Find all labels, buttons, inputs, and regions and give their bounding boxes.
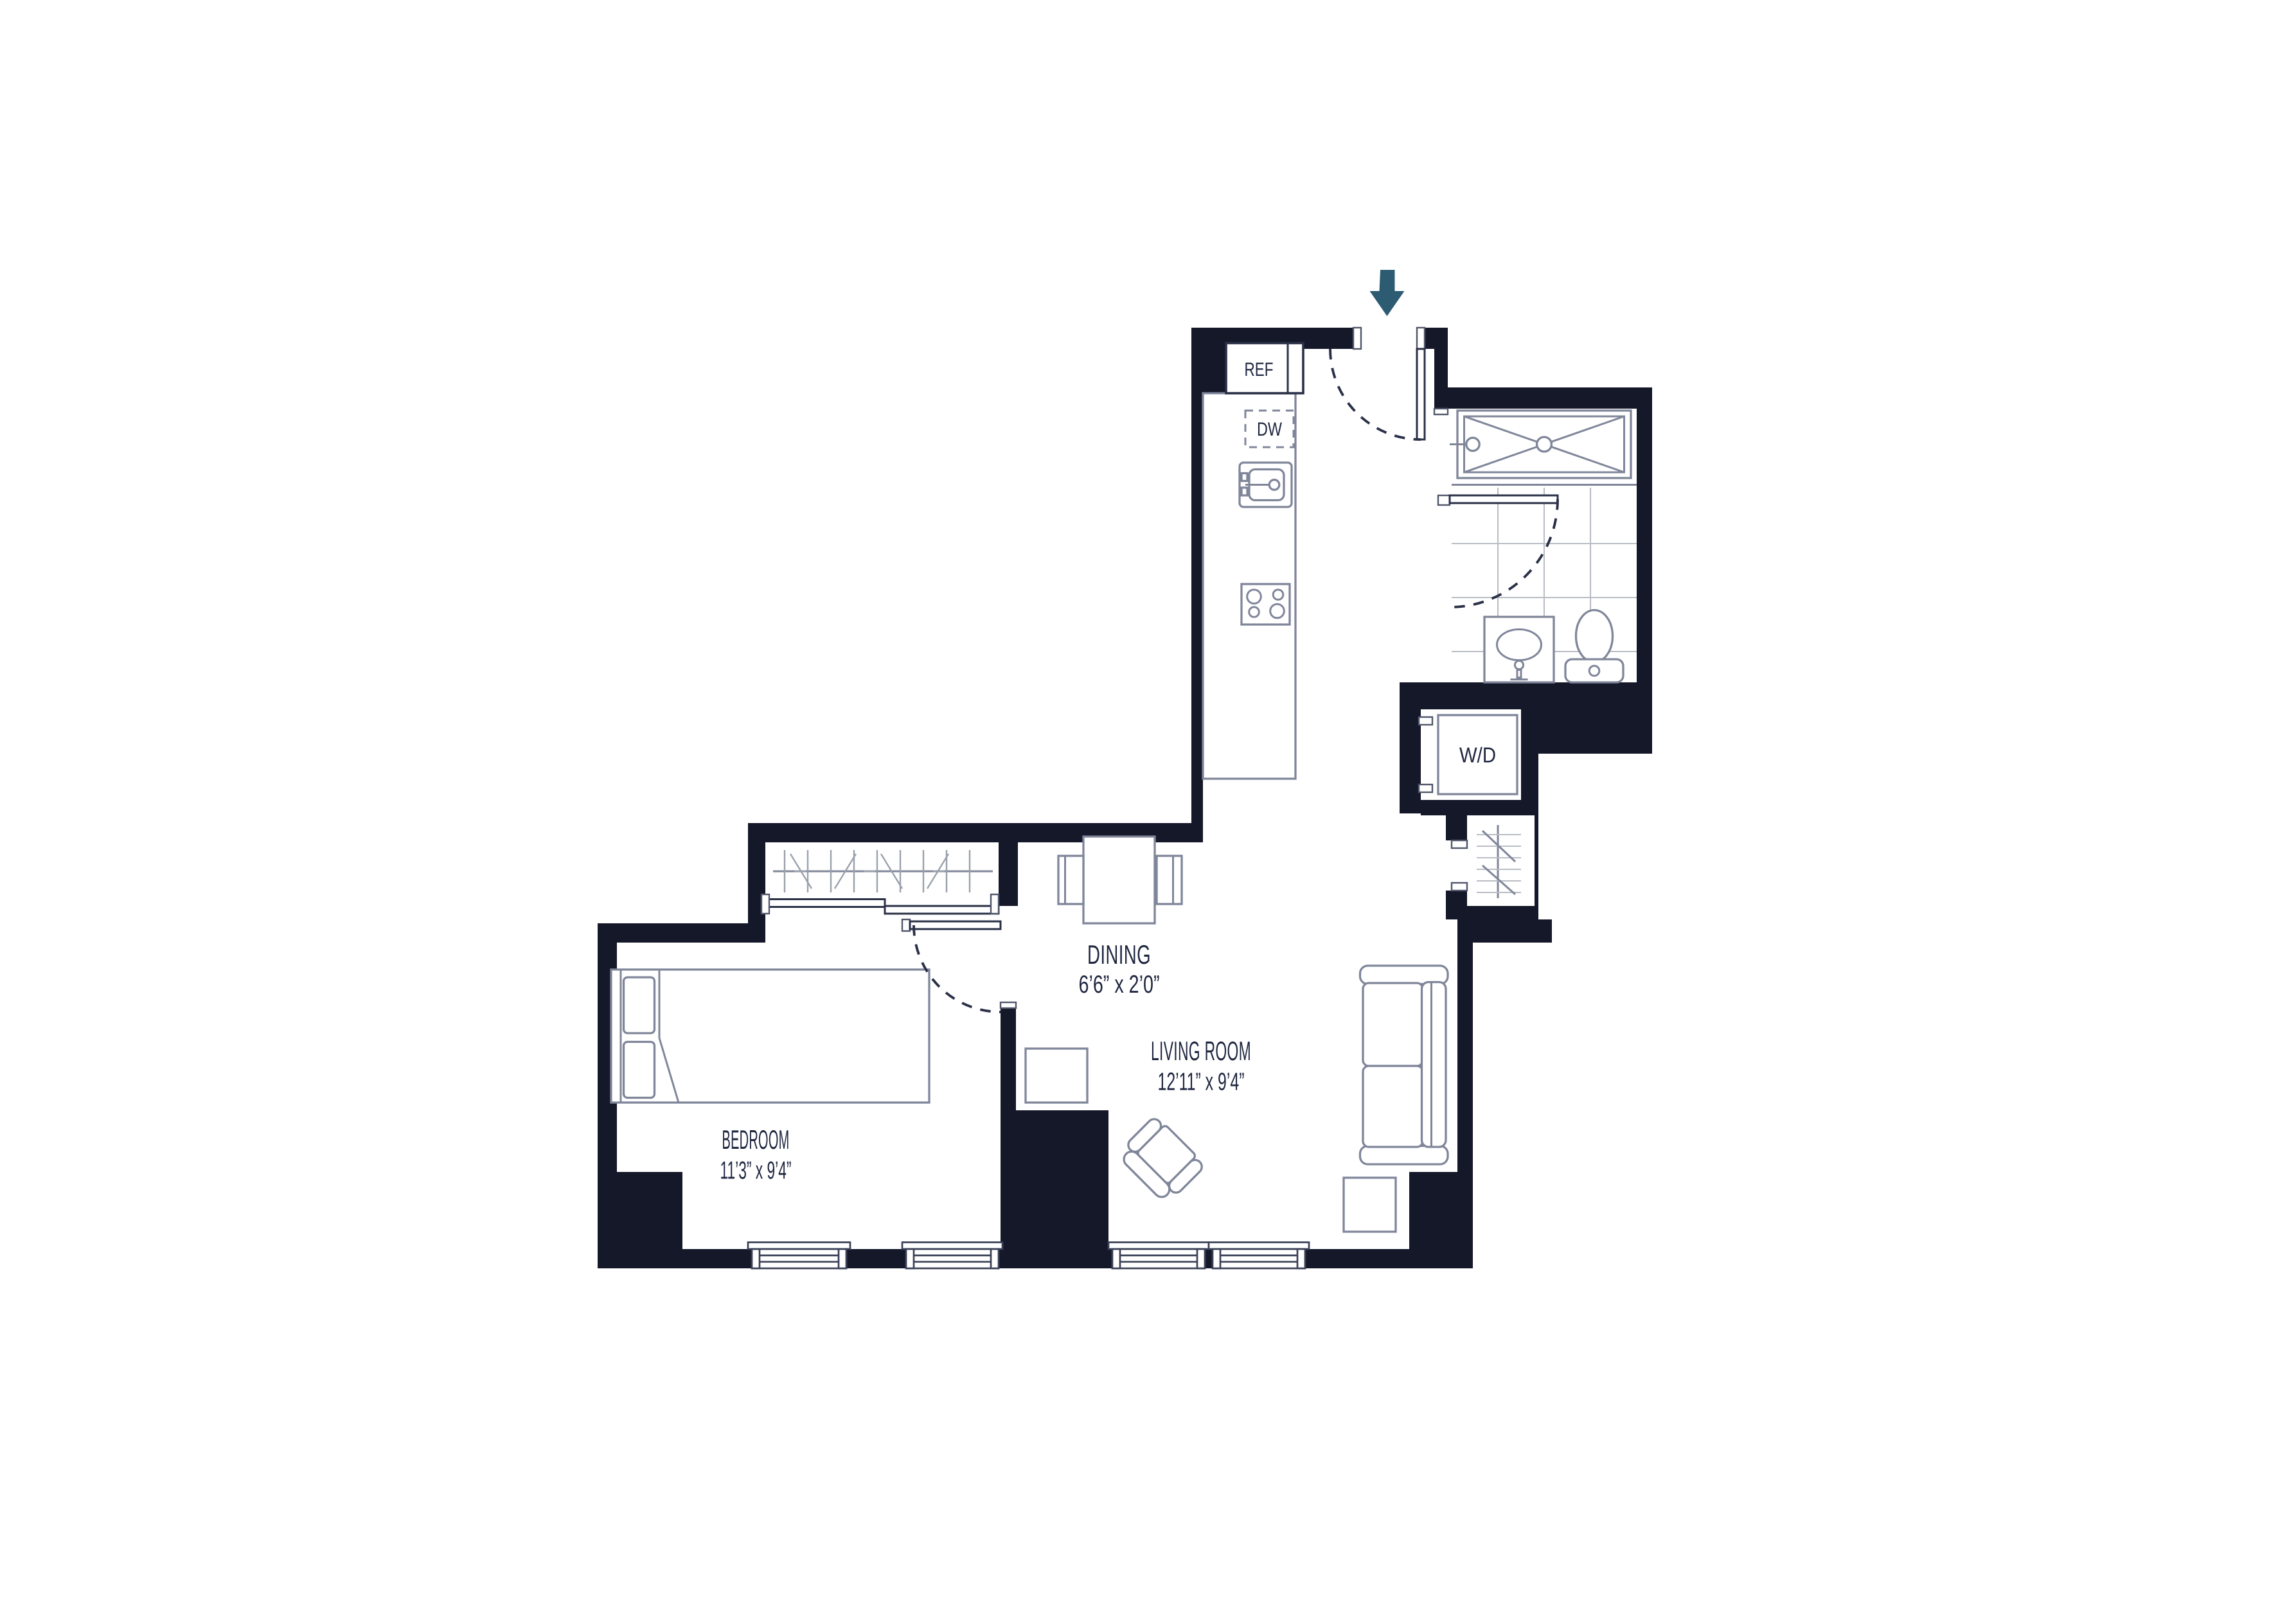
kitchen: REF DW: [1203, 343, 1303, 779]
bedroom-window-2: [902, 1243, 1002, 1269]
dining-chair-left: [1058, 856, 1083, 904]
dining-table: [1083, 837, 1155, 923]
refrigerator-label: REF: [1245, 359, 1274, 380]
bathtub: [1450, 411, 1637, 485]
closet-sliding-doors: [767, 900, 999, 914]
washer-dryer-label: W/D: [1459, 743, 1496, 767]
room-dims-bedroom: 11’3” x 9’4”: [720, 1157, 792, 1185]
sofa: [1360, 966, 1448, 1164]
bedroom-window-1: [748, 1243, 850, 1269]
living-window-1: [1108, 1243, 1209, 1269]
room-label-living: LIVING ROOM: [1151, 1036, 1251, 1066]
dining-area: DINING 6’6” x 2’0”: [1058, 837, 1182, 998]
bedroom: BEDROOM 11’3” x 9’4”: [611, 970, 929, 1185]
refrigerator: REF: [1226, 343, 1303, 393]
toilet: [1565, 610, 1623, 683]
room-label-bedroom: BEDROOM: [722, 1124, 790, 1155]
room-label-dining: DINING: [1087, 939, 1151, 970]
entry-arrow-icon: [1370, 270, 1405, 316]
kitchen-sink: [1240, 463, 1292, 507]
bathroom-door-leaf: [1450, 495, 1558, 503]
bedroom-door-leaf: [910, 921, 1001, 929]
dishwasher-label: DW: [1257, 419, 1283, 440]
bathroom: [1450, 411, 1637, 682]
living-window-2: [1209, 1243, 1309, 1269]
room-dims-living: 12’11” x 9’4”: [1158, 1069, 1245, 1096]
console-table: [1026, 1049, 1087, 1103]
stove: [1241, 584, 1290, 625]
bathroom-sink: [1484, 617, 1554, 682]
bathroom-door-swing: [1450, 499, 1558, 607]
side-table: [1344, 1178, 1396, 1232]
dining-chair-right: [1157, 856, 1182, 904]
entry-door-leaf: [1417, 349, 1425, 439]
washer-dryer: W/D: [1438, 715, 1517, 794]
bed: [611, 970, 929, 1103]
armchair: [1116, 1115, 1206, 1205]
entry-door-swing: [1330, 349, 1421, 439]
hall-closet: [1477, 825, 1521, 898]
room-dims-dining: 6’6” x 2’0”: [1079, 971, 1160, 998]
bedroom-closet: [767, 850, 999, 914]
floor-plan: REF DW: [0, 0, 2296, 1623]
